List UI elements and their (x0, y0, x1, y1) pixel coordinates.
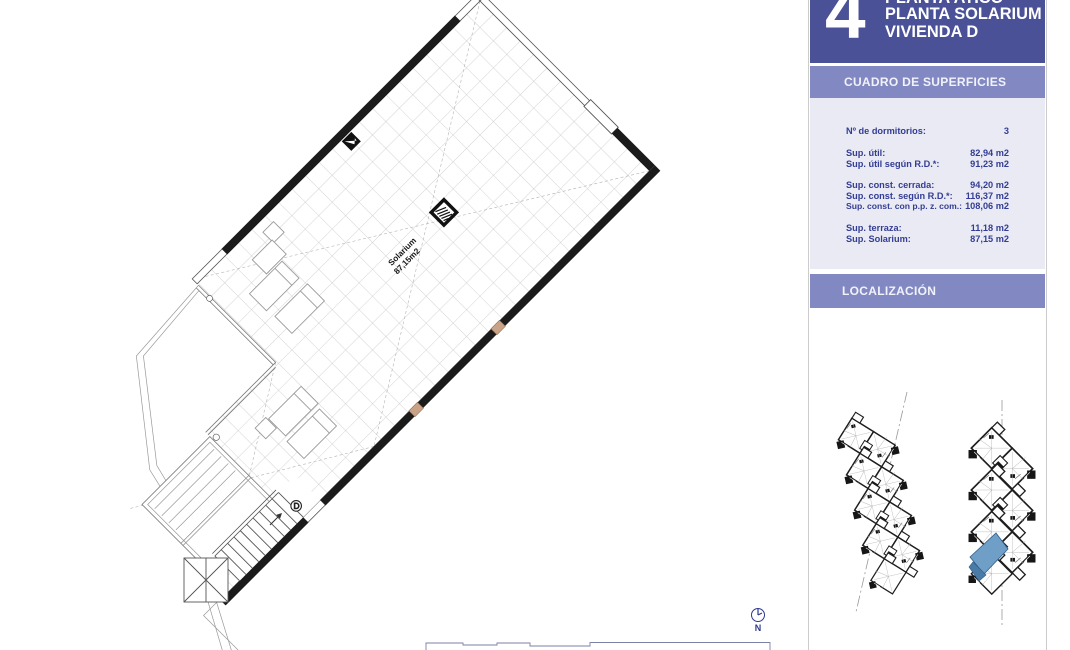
svg-text:N: N (755, 623, 762, 633)
